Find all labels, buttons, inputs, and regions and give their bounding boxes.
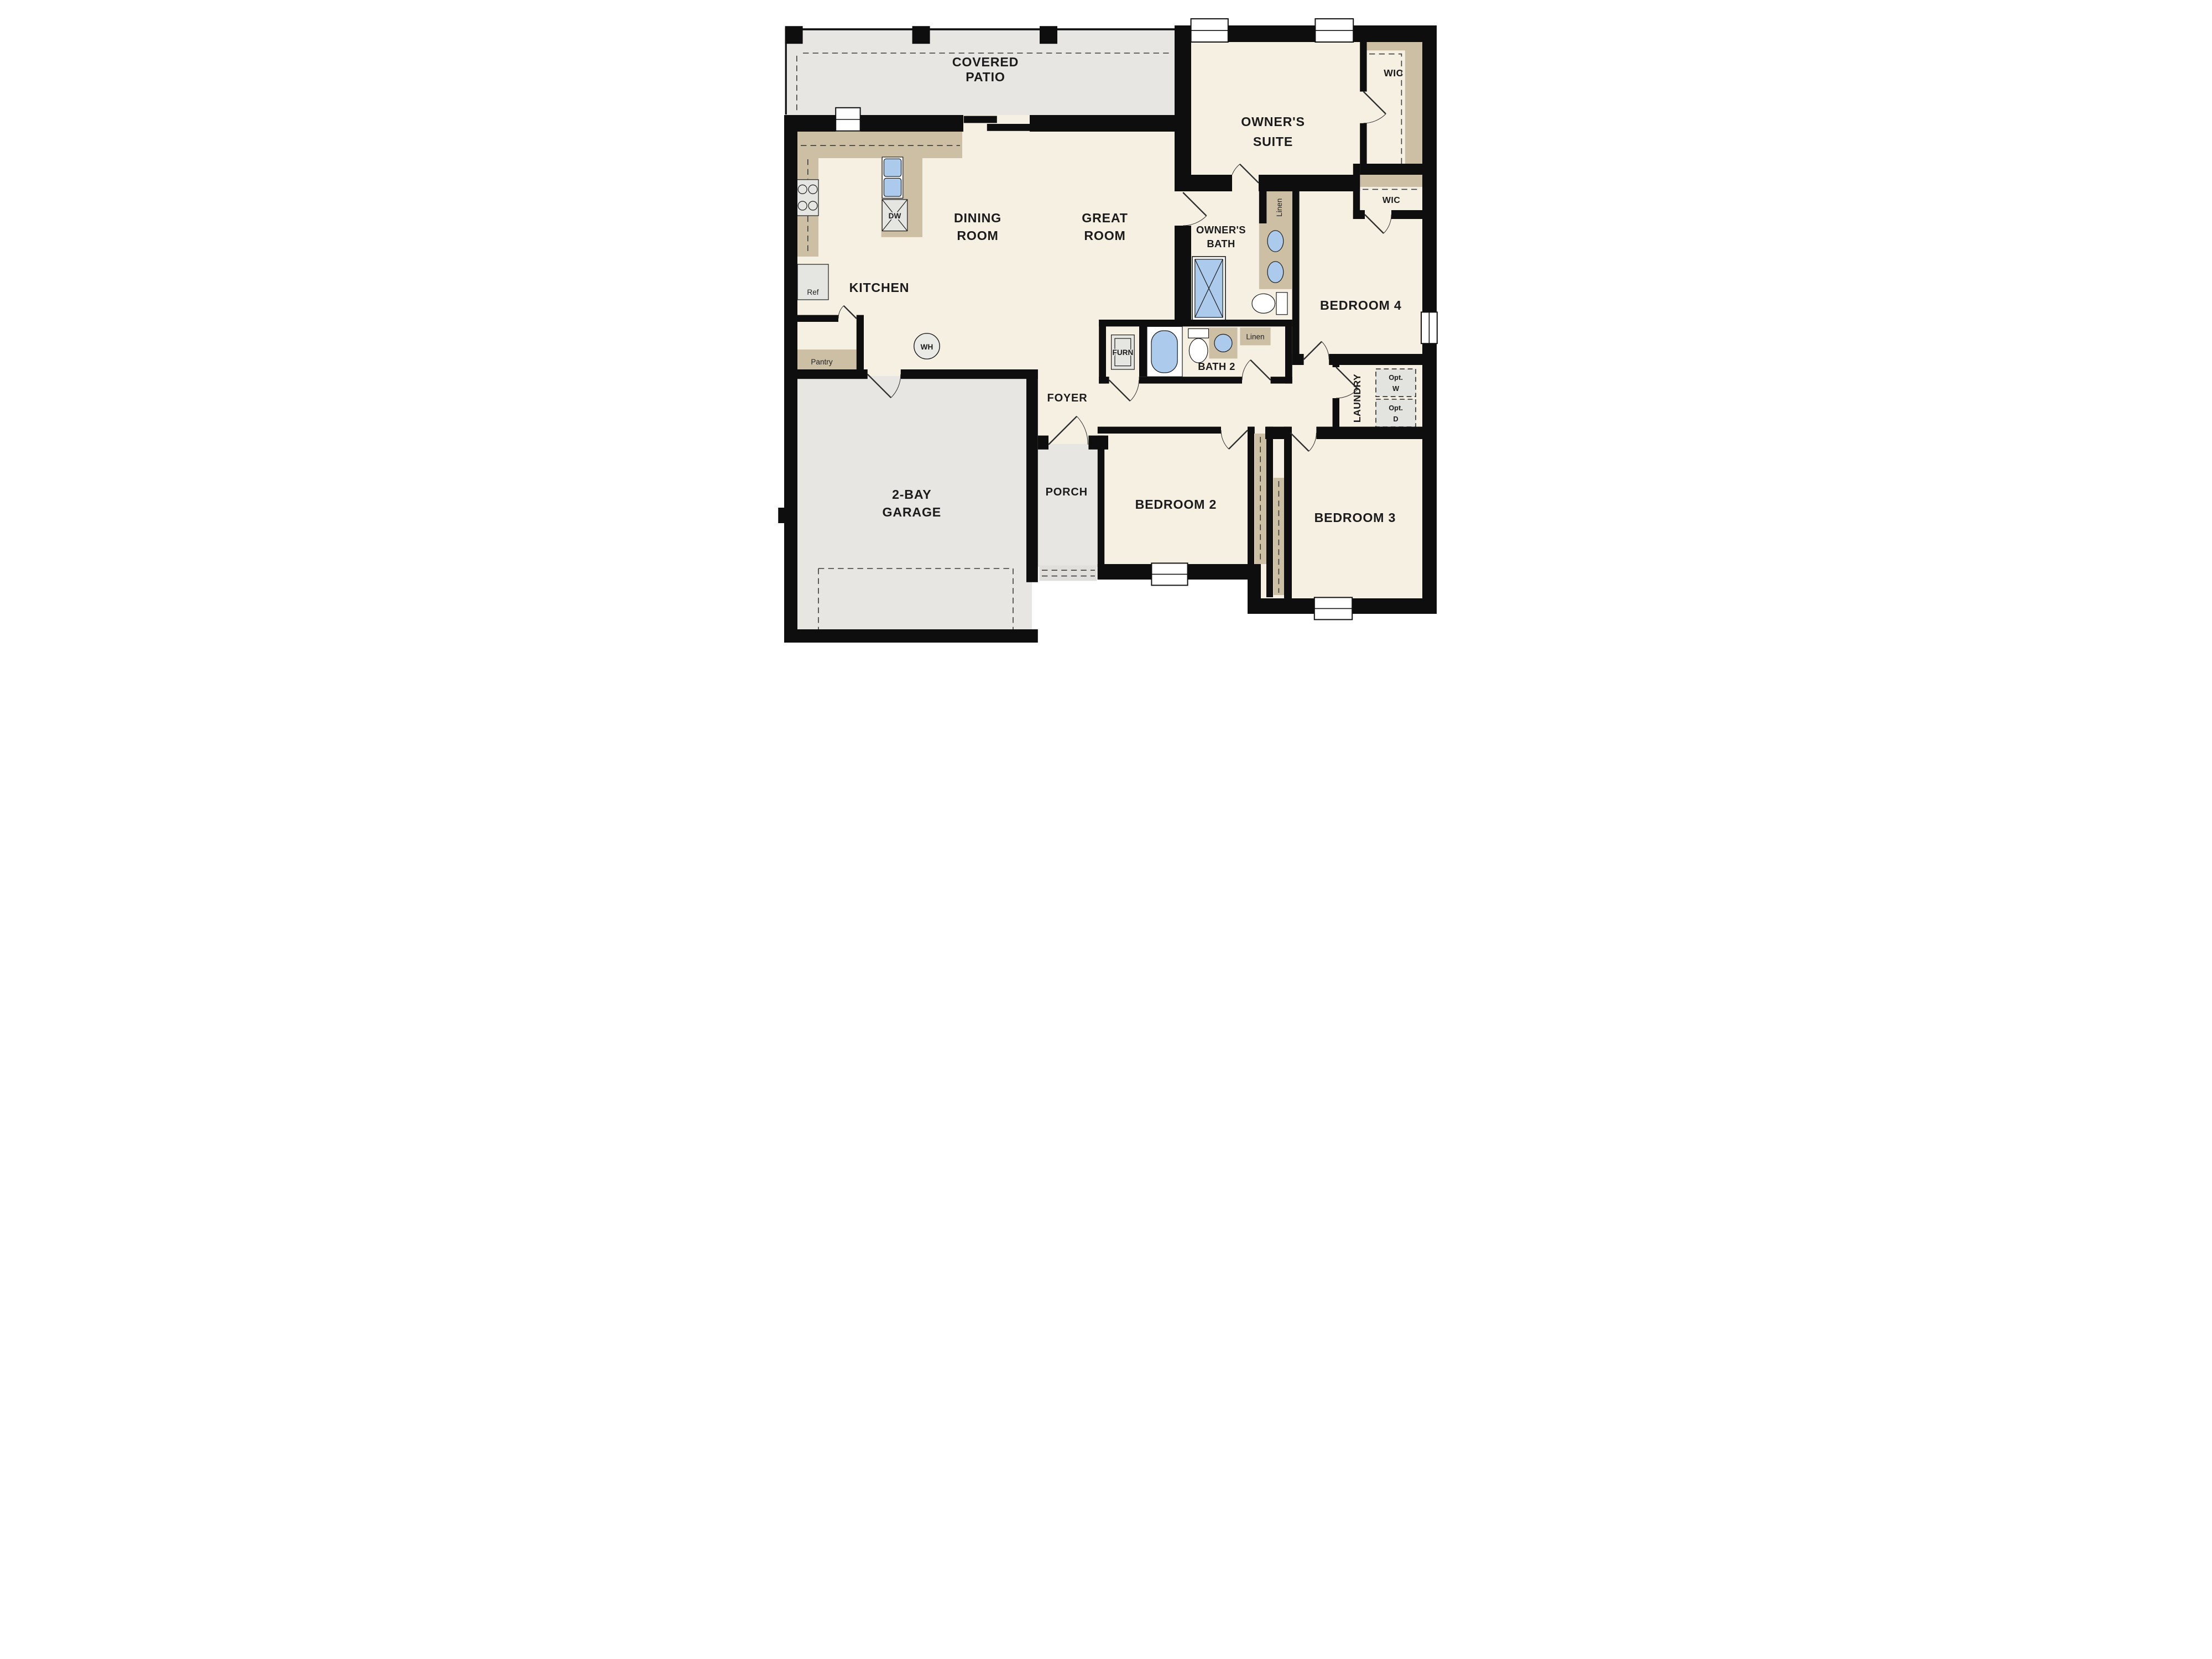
floor-garage	[791, 376, 1032, 633]
toilet-tank	[1188, 328, 1209, 338]
room-label-garage: GARAGE	[883, 505, 942, 519]
wall-segment	[1175, 25, 1191, 191]
room-label-owners-bath: BATH	[1207, 238, 1235, 249]
wall-segment	[1360, 164, 1422, 175]
cooktop	[797, 180, 818, 216]
room-label-dining-room: ROOM	[957, 228, 998, 243]
floor-plan-page: COVERED PATIO OWNER'S SUITE WIC WIC DINI…	[664, 0, 1548, 664]
wic2-shelf	[1360, 175, 1422, 187]
wall-segment	[1285, 320, 1292, 384]
room-label-covered-patio: PATIO	[966, 70, 1005, 84]
wall-segment	[1098, 436, 1104, 580]
patio-edge-line	[785, 28, 1175, 30]
wall-segment	[784, 369, 868, 379]
wall-segment	[1259, 175, 1360, 191]
room-label-bedroom-3: BEDROOM 3	[1314, 510, 1396, 525]
wall-segment	[1422, 343, 1437, 614]
wall-segment	[1259, 191, 1267, 223]
dishwasher-label: DW	[889, 212, 901, 220]
porch-step-band	[1039, 565, 1097, 581]
sliding-door-panel	[987, 124, 1030, 131]
wall-segment	[857, 315, 864, 369]
room-label-kitchen: KITCHEN	[849, 280, 910, 295]
room-label-owners-suite: OWNER'S	[1241, 114, 1305, 129]
kitchen-sink-bowl	[884, 178, 901, 196]
wall-segment	[1228, 25, 1316, 42]
wall-segment	[791, 315, 838, 322]
wic-shelf	[1405, 33, 1422, 175]
wall-segment	[1360, 33, 1366, 92]
patio-post	[1040, 26, 1057, 44]
bathtub	[1151, 331, 1177, 373]
room-label-wic-bed4: WIC	[1383, 196, 1400, 205]
exterior-mask	[1039, 581, 1098, 664]
wall-segment	[1139, 320, 1147, 377]
room-label-porch: PORCH	[1046, 486, 1088, 498]
wall-segment	[1333, 398, 1339, 429]
room-label-bedroom-2: BEDROOM 2	[1135, 497, 1217, 512]
kitchen-counter-top-run	[797, 132, 962, 158]
vanity-sink	[1214, 334, 1232, 352]
toilet-bowl	[1252, 294, 1275, 313]
vanity-sink	[1267, 262, 1284, 283]
wall-segment	[1266, 427, 1273, 597]
room-label-dining-room: DINING	[954, 211, 1001, 225]
optional-washer-label: Opt.	[1389, 373, 1403, 382]
wall-segment	[1191, 175, 1232, 191]
optional-washer-label: W	[1392, 384, 1400, 393]
wall-segment	[784, 629, 1038, 643]
wall-segment	[1292, 191, 1300, 365]
toilet-tank	[1276, 293, 1287, 315]
linen-label-hall: Linen	[1246, 333, 1264, 341]
wall-segment	[1038, 436, 1048, 450]
room-label-wic-suite: WIC	[1384, 67, 1403, 79]
water-heater-label: WH	[921, 343, 933, 351]
wall-segment	[1099, 320, 1292, 326]
room-label-laundry: LAUNDRY	[1352, 374, 1363, 422]
exterior-wall-nub	[778, 508, 784, 523]
wall-segment	[1292, 354, 1304, 365]
room-label-great-room: GREAT	[1082, 211, 1128, 225]
patio-post	[912, 26, 930, 44]
room-label-foyer: FOYER	[1047, 392, 1088, 404]
optional-dryer-label: Opt.	[1389, 404, 1403, 412]
wall-segment	[860, 115, 963, 132]
wall-segment	[784, 115, 836, 132]
kitchen-sink-bowl	[884, 159, 901, 176]
wall-segment	[1175, 226, 1191, 320]
wall-segment	[1139, 377, 1242, 383]
wall-segment	[1099, 320, 1106, 384]
vanity-sink	[1267, 231, 1284, 252]
porch-steps	[1039, 565, 1097, 581]
room-label-pantry: Pantry	[811, 358, 832, 366]
furnace-label: FURN	[1113, 348, 1134, 357]
wall-segment	[1098, 427, 1221, 434]
wall-segment	[1284, 427, 1292, 598]
wall-segment	[1098, 564, 1152, 580]
wall-segment	[901, 369, 1038, 379]
room-label-bedroom-4: BEDROOM 4	[1320, 298, 1402, 312]
optional-dryer-label: D	[1393, 415, 1398, 423]
room-label-bath-2: BATH 2	[1198, 361, 1235, 372]
wall-segment	[1333, 365, 1339, 367]
wall-segment	[1099, 377, 1109, 383]
wall-segment	[1248, 598, 1314, 614]
wall-segment	[1030, 115, 1191, 132]
exterior-mask	[1098, 580, 1248, 664]
room-label-garage: 2-BAY	[892, 487, 931, 502]
toilet-bowl	[1189, 338, 1208, 363]
floor-porch	[1038, 444, 1098, 567]
floor-plan-drawing: COVERED PATIO OWNER'S SUITE WIC WIC DINI…	[664, 0, 1548, 664]
linen-label-owners: Linen	[1275, 199, 1284, 217]
wall-segment	[1353, 210, 1365, 219]
patio-post	[785, 26, 803, 44]
room-label-owners-suite: SUITE	[1253, 134, 1293, 149]
wall-segment	[1422, 25, 1437, 312]
room-label-great-room: ROOM	[1084, 228, 1125, 243]
wall-segment	[1248, 427, 1254, 564]
sliding-patio-door	[963, 115, 1030, 132]
wall-segment	[1026, 369, 1038, 582]
room-label-owners-bath: OWNER'S	[1196, 224, 1246, 236]
wall-segment	[1316, 427, 1437, 439]
refrigerator-label: Ref	[807, 288, 818, 296]
wall-segment	[1391, 210, 1422, 219]
sliding-door-panel	[964, 116, 997, 123]
room-label-covered-patio: COVERED	[952, 55, 1019, 69]
wall-segment	[1329, 354, 1422, 365]
